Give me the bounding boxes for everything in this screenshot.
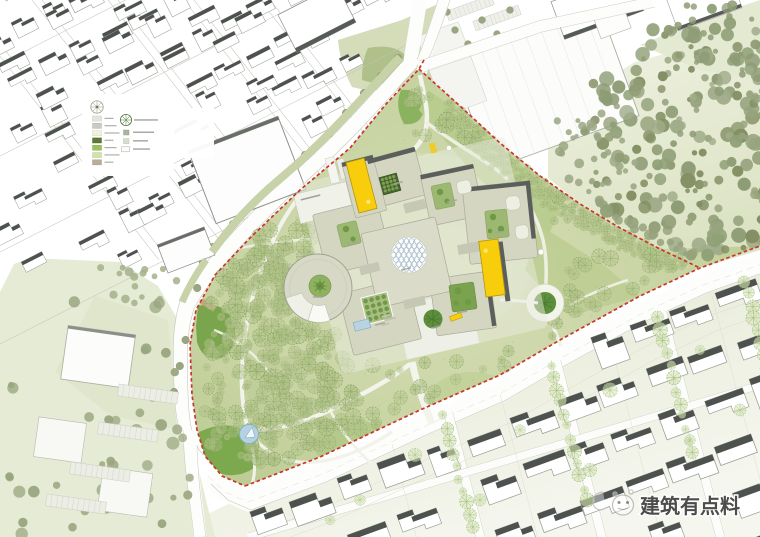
- svg-text:建筑有点料: 建筑有点料: [640, 494, 740, 518]
